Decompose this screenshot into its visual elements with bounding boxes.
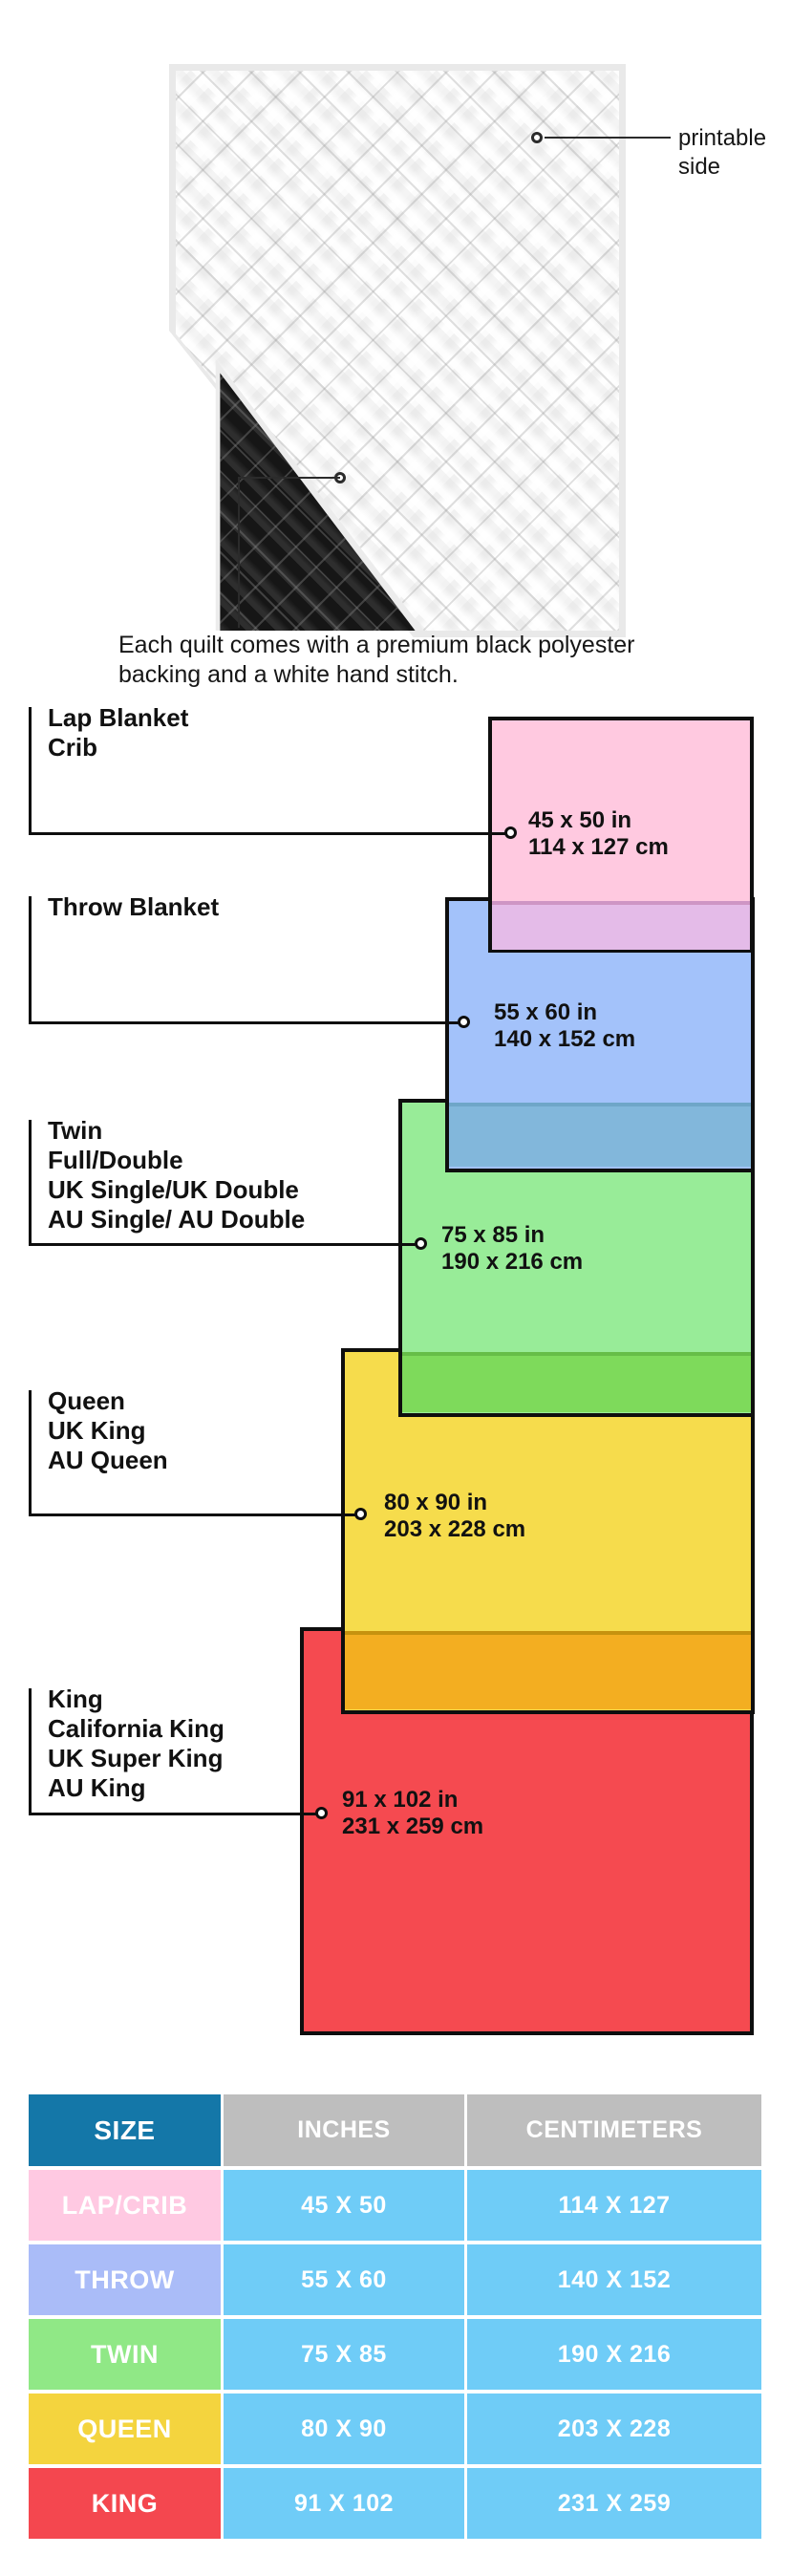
marker-dot-throw [458,1016,470,1028]
table-cell-inches: 45 X 50 [224,2170,464,2241]
group-label-throw: Throw Blanket [48,892,219,922]
leader-bar-queen [29,1390,32,1516]
table-header-centimeters: CENTIMETERS [467,2094,761,2166]
label-line: UK Single/UK Double [48,1175,305,1205]
table-cell-cm: 203 X 228 [467,2394,761,2464]
size-table: SIZE INCHES CENTIMETERS LAP/CRIB 45 X 50… [29,2094,761,2539]
label-line: UK Super King [48,1744,224,1773]
label-line: AU Queen [48,1446,168,1475]
table-cell-cm: 140 X 152 [467,2244,761,2315]
quilt-caption-line1: Each quilt comes with a premium black po… [118,631,635,660]
marker-dot-queen [354,1508,367,1520]
leader-bar-twin [29,1120,32,1246]
dimension-inches: 55 x 60 in [494,999,635,1026]
label-line: AU Single/ AU Double [48,1205,305,1234]
leader-bar-lap-crib [29,707,32,835]
infographic-page: printable side Each quilt comes with a p… [0,0,791,2576]
backing-leader-line-horizontal [239,477,340,479]
dimensions-lap-crib: 45 x 50 in 114 x 127 cm [528,807,669,861]
group-label-king: King California King UK Super King AU Ki… [48,1685,224,1803]
leader-line-king [29,1813,316,1815]
overlap-queen-over-king [345,1631,751,1709]
leader-line-twin [29,1243,416,1246]
printable-side-label: printable side [678,124,766,182]
leader-line-queen [29,1513,355,1516]
label-line: Crib [48,733,188,762]
table-row-label-lap-crib: LAP/CRIB [29,2170,221,2241]
printable-side-label-line2: side [678,153,766,182]
dimension-inches: 75 x 85 in [441,1222,583,1249]
dimension-cm: 140 x 152 cm [494,1026,635,1053]
label-line: Throw Blanket [48,892,219,922]
dimensions-queen: 80 x 90 in 203 x 228 cm [384,1490,525,1543]
quilt-illustration [176,71,619,631]
dimension-inches: 80 x 90 in [384,1490,525,1516]
label-line: California King [48,1714,224,1744]
label-line: Lap Blanket [48,703,188,733]
printable-side-leader-line [545,137,671,139]
table-cell-cm: 231 X 259 [467,2468,761,2539]
dimensions-king: 91 x 102 in 231 x 259 cm [342,1787,483,1840]
table-cell-inches: 75 X 85 [224,2319,464,2390]
printable-side-marker-dot [531,132,543,143]
table-cell-cm: 190 X 216 [467,2319,761,2390]
label-line: Queen [48,1386,168,1416]
marker-dot-lap-crib [504,826,517,839]
dimension-inches: 91 x 102 in [342,1787,483,1814]
leader-bar-king [29,1688,32,1815]
backing-leader-line-vertical [238,477,240,628]
printable-side-label-line1: printable [678,124,766,153]
overlap-twin-over-queen [402,1352,751,1412]
quilt-caption-line2: backing and a white hand stitch. [118,660,635,690]
label-line: AU King [48,1773,224,1803]
marker-dot-twin [415,1237,427,1250]
table-row-label-twin: TWIN [29,2319,221,2390]
dimension-cm: 114 x 127 cm [528,834,669,861]
overlap-throw-over-twin [449,1103,751,1167]
table-header-size: SIZE [29,2094,221,2166]
table-row-label-king: KING [29,2468,221,2539]
label-line: King [48,1685,224,1714]
table-cell-inches: 91 X 102 [224,2468,464,2539]
table-cell-inches: 80 X 90 [224,2394,464,2464]
marker-dot-king [315,1807,328,1819]
table-cell-inches: 55 X 60 [224,2244,464,2315]
dimensions-twin: 75 x 85 in 190 x 216 cm [441,1222,583,1276]
label-line: Full/Double [48,1146,305,1175]
overlap-lap-over-throw [492,901,750,950]
table-header-inches: INCHES [224,2094,464,2166]
quilt-caption: Each quilt comes with a premium black po… [118,631,635,690]
dimension-inches: 45 x 50 in [528,807,669,834]
dimension-cm: 231 x 259 cm [342,1814,483,1840]
group-label-twin: Twin Full/Double UK Single/UK Double AU … [48,1116,305,1234]
dimensions-throw: 55 x 60 in 140 x 152 cm [494,999,635,1053]
dimension-cm: 203 x 228 cm [384,1516,525,1543]
group-label-lap-crib: Lap Blanket Crib [48,703,188,762]
label-line: UK King [48,1416,168,1446]
leader-line-lap-crib [29,832,505,835]
group-label-queen: Queen UK King AU Queen [48,1386,168,1475]
label-line: Twin [48,1116,305,1146]
table-cell-cm: 114 X 127 [467,2170,761,2241]
table-row-label-throw: THROW [29,2244,221,2315]
table-row-label-queen: QUEEN [29,2394,221,2464]
dimension-cm: 190 x 216 cm [441,1249,583,1276]
leader-bar-throw [29,896,32,1024]
leader-line-throw [29,1021,459,1024]
